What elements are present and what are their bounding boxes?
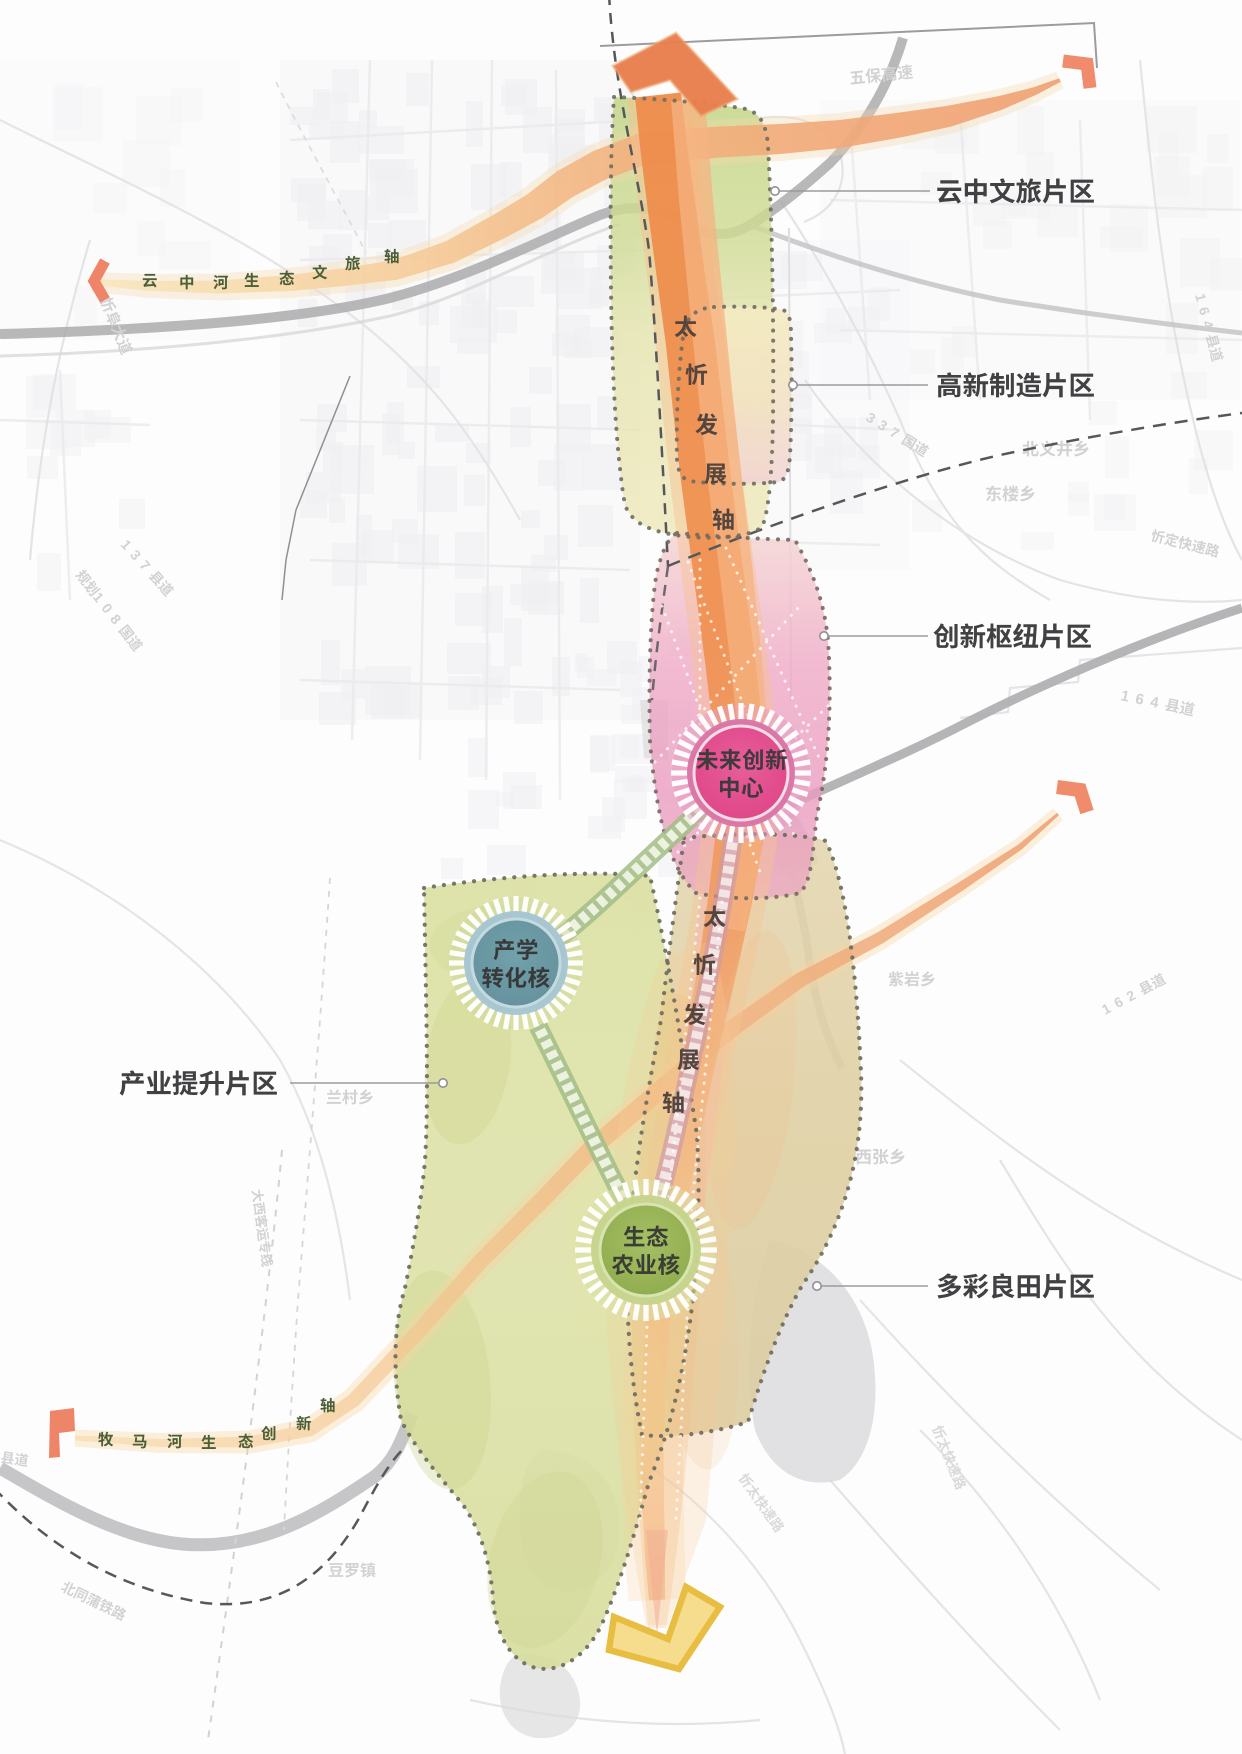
svg-text:线: 线	[258, 1253, 275, 1268]
